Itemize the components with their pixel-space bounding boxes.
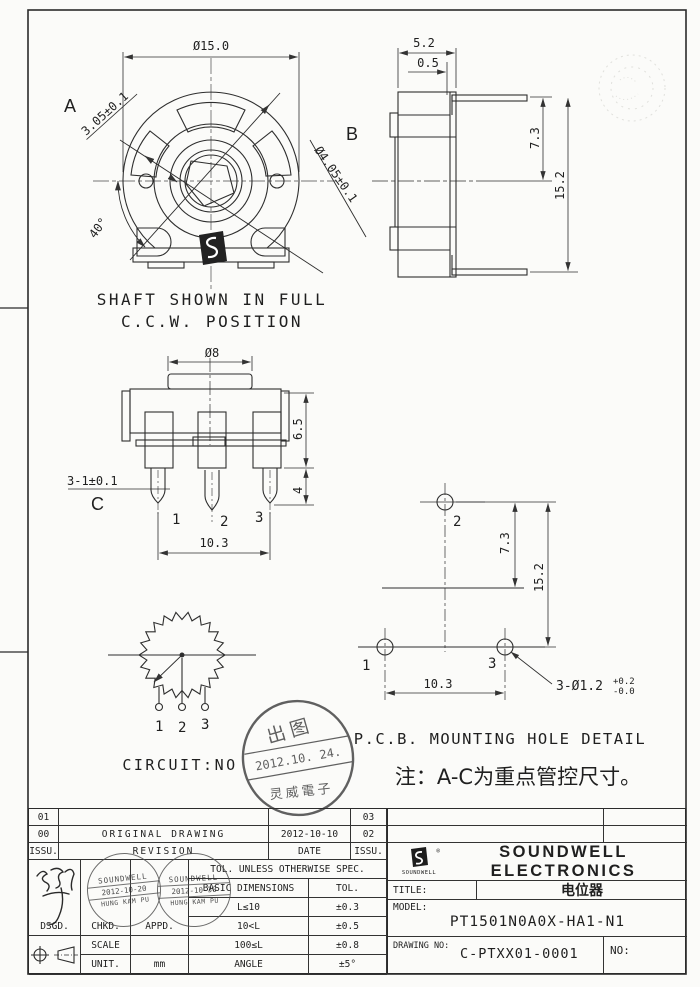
dim-center-text: 7.3 <box>528 127 542 149</box>
title-row: TITLE: 电位器 <box>388 881 687 900</box>
rev-desc-2: ORIGINAL DRAWING <box>59 826 269 843</box>
pin-body <box>130 389 281 433</box>
dim-body-dia-text: Ø15.0 <box>193 39 229 53</box>
hole2-label: 2 <box>453 514 461 530</box>
rev-right-desc-2 <box>388 826 604 842</box>
rev-issu2-2: 02 <box>351 826 387 843</box>
unit-label: UNIT. <box>81 955 131 975</box>
tol-col-header: TOL. <box>309 879 387 898</box>
pin1-label: 1 <box>172 512 180 528</box>
pcb-dim-span-text: 10.3 <box>424 677 453 691</box>
dim-pin-width-text: 3-1±0.1 <box>67 474 118 488</box>
pcb-detail-title: P.C.B. MOUNTING HOLE DETAIL <box>354 730 646 748</box>
tol-range-4: ANGLE <box>189 955 309 975</box>
bottom-view: Ø8 6.5 4 3-1±0.1 C 1 2 3 10.3 <box>67 346 314 560</box>
dim-diagonals <box>120 93 366 273</box>
title-block: 01 03 00 ORIGINAL DRAWING 2012-10-10 02 … <box>28 808 686 974</box>
tol-range-2: 10<L <box>189 917 309 936</box>
rev-right-extra-1 <box>604 809 687 825</box>
side-view: 5.2 0.5 7.3 15.2 <box>372 36 578 277</box>
tol-value-3: ±0.8 <box>309 936 387 955</box>
soundwell-logo-icon <box>408 846 430 868</box>
circuit-symbol: 1 2 3 CIRCUIT:NO <box>108 612 256 774</box>
registered-mark: ® <box>436 848 440 855</box>
drawing-no-label: DRAWING NO: <box>393 941 449 951</box>
circuit-pin1: 1 <box>155 719 163 735</box>
svg-text:15.2: 15.2 <box>553 171 567 200</box>
circuit-pin3: 3 <box>201 717 209 733</box>
company-logo: ® SOUNDWELL <box>396 846 442 876</box>
control-dimension-note: 注：A-C为重点管控尺寸。 <box>395 765 641 789</box>
body-tab-right <box>281 391 289 441</box>
no-cell: NO: <box>604 937 687 973</box>
slot-lower-left <box>137 228 171 256</box>
basic-dim-header: BASIC DIMENSIONS <box>189 879 309 898</box>
model-label: MODEL: <box>393 902 427 913</box>
svg-text:40°: 40° <box>86 215 110 241</box>
wiper-arrow <box>154 655 182 682</box>
dim-depth-text: 5.2 <box>413 36 435 50</box>
hole3-label: 3 <box>488 656 496 672</box>
model-value: PT1501N0A0X-HA1-N1 <box>388 914 687 930</box>
svg-text:7.3: 7.3 <box>528 127 542 149</box>
front-caption-2: C.C.W. POSITION <box>121 312 303 331</box>
pin2-label: 2 <box>220 514 228 530</box>
rev-right-desc-1 <box>388 809 604 825</box>
tolerance-table: TOL. UNLESS OTHERWISE SPEC. BASIC DIMENS… <box>29 860 387 975</box>
label-c: C <box>91 494 104 514</box>
pcb-dims <box>387 502 557 693</box>
title-block-left: 01 03 00 ORIGINAL DRAWING 2012-10-10 02 … <box>29 809 387 973</box>
label-b: B <box>346 124 358 144</box>
watermark-smudge <box>599 55 665 121</box>
rev-issu2-1: 03 <box>351 809 387 826</box>
seating-plane <box>136 440 286 446</box>
drawing-no-cell: DRAWING NO: C-PTXX01-0001 <box>388 937 604 973</box>
chkd-label: CHKD. <box>81 917 131 936</box>
bottom-dims <box>68 356 314 560</box>
dim-angle-text: 40° <box>86 215 110 241</box>
model-row: MODEL: PT1501N0A0X-HA1-N1 <box>388 900 687 937</box>
rev-h-date: DATE <box>269 843 351 860</box>
body-tab-left <box>122 391 130 441</box>
circuit-label: CIRCUIT:NO <box>122 756 237 774</box>
hole-tol-plus: +0.2 <box>613 677 635 687</box>
rev-issu-1: 01 <box>29 809 59 826</box>
stamp-bottom-text: 灵威電子 <box>269 782 334 804</box>
drawing-no-row: DRAWING NO: C-PTXX01-0001 NO: <box>388 937 687 973</box>
company-row: ® SOUNDWELL SOUNDWELL ELECTRONICS <box>388 843 687 881</box>
projection-symbol-cell <box>29 936 81 975</box>
tol-value-2: ±0.5 <box>309 917 387 936</box>
slot-lower-right <box>251 228 285 256</box>
pcb-dim-center-text: 7.3 <box>498 532 512 554</box>
dim-a-text: 3.05±0.1 <box>77 84 137 140</box>
side-tab-bottom <box>390 227 398 250</box>
title-label: TITLE: <box>388 881 477 899</box>
unit-value: mm <box>131 955 189 975</box>
svg-text:Ø4.05±0.1: Ø4.05±0.1 <box>312 144 361 205</box>
front-view: Ø15.0 A 3.05±0.1 B Ø4.05±0.1 40° SHAFT S… <box>64 39 366 331</box>
revision-table: 01 03 00 ORIGINAL DRAWING 2012-10-10 02 … <box>29 809 387 860</box>
tol-range-3: 100≤L <box>189 936 309 955</box>
tol-range-1: L≤10 <box>189 898 309 917</box>
part-logo <box>199 231 227 265</box>
scale-label: SCALE <box>81 936 131 955</box>
drawing-sheet: { "sheet": { "note": "注：A-C为重点管控尺寸。", "p… <box>0 0 700 987</box>
pcb-dim-height-text: 15.2 <box>532 563 546 592</box>
hole-spec-text: 3-Ø1.2 <box>556 679 603 694</box>
pin3-label: 3 <box>255 510 263 526</box>
foot-left <box>148 262 184 268</box>
tol-value-1: ±0.3 <box>309 898 387 917</box>
tol-value-4: ±5° <box>309 955 387 975</box>
side-body <box>398 92 456 277</box>
rev-issu-2: 00 <box>29 826 59 843</box>
drawing-no-value: C-PTXX01-0001 <box>460 946 579 962</box>
rev-h-desc: REVISION <box>59 843 269 860</box>
no-label: NO: <box>610 944 630 957</box>
rev-h-issu2: ISSU. <box>351 843 387 860</box>
side-tab-top <box>390 113 398 137</box>
tol-header: TOL. UNLESS OTHERWISE SPEC. <box>189 860 387 879</box>
side-dims <box>398 48 578 272</box>
dim-pin-len-text: 4 <box>291 487 305 494</box>
hole-tol-minus: -0.0 <box>613 687 635 697</box>
terminal-plate-bottom <box>452 269 527 275</box>
slot-upper-left <box>131 131 169 177</box>
front-caption-1: SHAFT SHOWN IN FULL <box>97 290 328 309</box>
dim-b-text: Ø4.05±0.1 <box>312 144 361 205</box>
rev-date-1 <box>269 809 351 826</box>
slot-upper-right <box>253 131 291 176</box>
svg-text:6.5: 6.5 <box>291 418 305 440</box>
dim-shaft-dia-text: Ø8 <box>205 346 219 360</box>
dim-body-h-text: 6.5 <box>291 418 305 440</box>
rev-h-issu: ISSU. <box>29 843 59 860</box>
label-a: A <box>64 96 76 116</box>
stamp-date: 2012.10. 24. <box>254 745 342 774</box>
terminal-plate-top <box>452 95 527 101</box>
svg-text:7.3: 7.3 <box>498 532 512 554</box>
hole1-label: 1 <box>362 658 370 674</box>
dsgd-label: DSGD. <box>29 917 81 936</box>
dim-pin-span-text: 10.3 <box>200 536 229 550</box>
title-block-right: ® SOUNDWELL SOUNDWELL ELECTRONICS TITLE:… <box>387 809 687 973</box>
circuit-pin2: 2 <box>178 720 186 736</box>
svg-text:15.2: 15.2 <box>532 563 546 592</box>
pcb-view: 2 1 3 7.3 15.2 10.3 3-Ø1.2 +0.2 -0.0 <box>358 483 635 700</box>
dim-height-text: 15.2 <box>553 171 567 200</box>
appd-label: APPD. <box>131 917 189 936</box>
angle-arc <box>118 181 145 247</box>
rev-strip-right-1 <box>388 809 687 826</box>
projection-symbol <box>30 942 80 968</box>
scale-value <box>131 936 189 955</box>
release-stamp: 出图 2012.10. 24. 灵威電子 <box>234 692 362 823</box>
svg-text:4: 4 <box>291 487 305 494</box>
dim-step-text: 0.5 <box>417 56 439 70</box>
rev-date-2: 2012-10-10 <box>269 826 351 843</box>
foot-right <box>238 262 274 268</box>
title-value: 电位器 <box>477 880 687 900</box>
logo-caption: SOUNDWELL <box>396 870 442 876</box>
rev-desc-1 <box>59 809 269 826</box>
rev-strip-right-2 <box>388 826 687 843</box>
rev-right-extra-2 <box>604 826 687 842</box>
